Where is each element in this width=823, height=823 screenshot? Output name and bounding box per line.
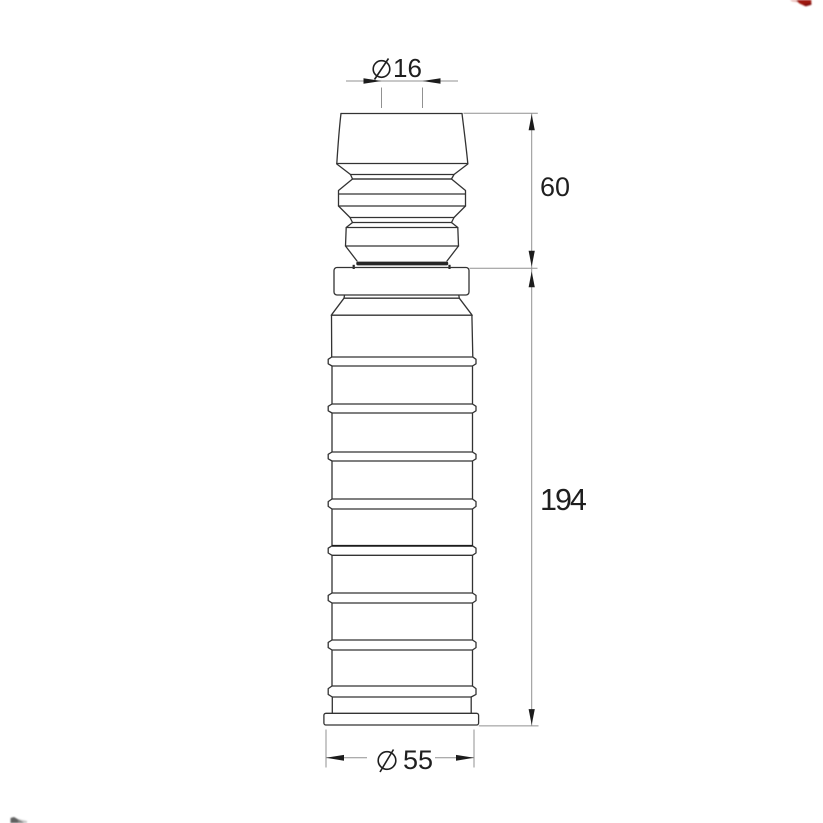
svg-text:16: 16	[393, 53, 422, 83]
svg-text:55: 55	[403, 745, 433, 775]
svg-text:60: 60	[540, 172, 570, 202]
svg-text:194: 194	[540, 483, 587, 517]
